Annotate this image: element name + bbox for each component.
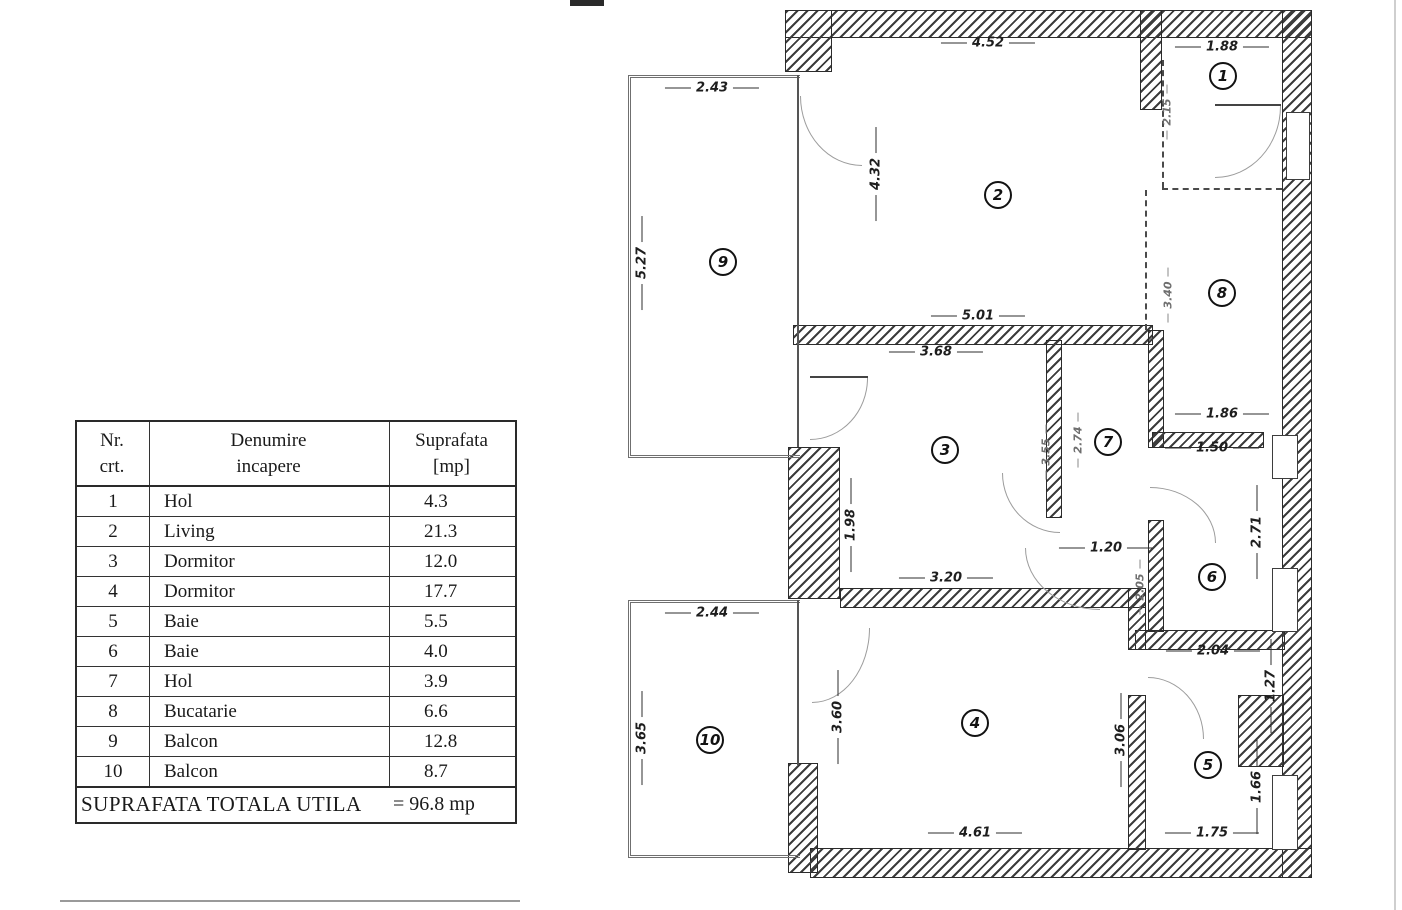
door-swing-arc [1150, 487, 1216, 543]
room-number-circle: 9 [709, 248, 737, 276]
wall [785, 10, 1312, 38]
dimension-label: 4.61 [928, 826, 1022, 841]
scanned-floor-plan-page: Nr. crt. Denumire incapere Suprafata [mp… [0, 0, 1402, 910]
dimension-label: 5.27 [635, 216, 650, 310]
room-number-circle: 7 [1094, 428, 1122, 456]
room-number-circle: 10 [696, 726, 724, 754]
wall [793, 325, 1153, 345]
dimension-label: 2.04 [1166, 644, 1260, 659]
dimension-label: 4.52 [941, 36, 1035, 51]
dimension-label: 3.40 [1162, 267, 1175, 322]
room-number-circle: 8 [1208, 279, 1236, 307]
dimension-label: 3.06 [1114, 693, 1129, 787]
wall [785, 10, 832, 72]
dimension-label: 1.88 [1175, 40, 1269, 55]
wall [1128, 695, 1146, 850]
room-number-circle: 2 [984, 181, 1012, 209]
dimension-label: 2.44 [665, 606, 759, 621]
wall [788, 447, 840, 599]
wall [840, 588, 1146, 608]
dimension-label: 3.20 [899, 571, 993, 586]
dimension-label: 1.20 [1059, 541, 1153, 556]
dimension-label: 1.27 [1264, 639, 1279, 733]
dimension-label: 3.55 [1040, 424, 1053, 479]
room-number-circle: 4 [961, 709, 989, 737]
room-number-circle: 3 [931, 436, 959, 464]
opening-dashed-line [1162, 188, 1282, 190]
door-swing-arc [1002, 473, 1060, 533]
wall [1140, 10, 1162, 110]
window [1272, 435, 1298, 479]
dimension-label: 4.32 [869, 127, 884, 221]
plan-line [1394, 0, 1396, 910]
room-number-circle: 5 [1194, 751, 1222, 779]
plan-line [570, 0, 604, 6]
plan-line [797, 75, 799, 447]
dimension-label: 1.50 [1165, 441, 1259, 456]
door-swing-arc [800, 96, 862, 166]
wall [810, 848, 1312, 878]
door-swing-arc [1148, 677, 1204, 739]
dimension-label: 1.66 [1250, 740, 1265, 834]
wall [1148, 330, 1164, 448]
dimension-label: 1.75 [1165, 826, 1259, 841]
window [1272, 568, 1298, 632]
plan-line [797, 600, 799, 765]
door-swing-arc [810, 378, 868, 440]
dimension-label: 2.43 [665, 81, 759, 96]
dimension-label: 3.68 [889, 345, 983, 360]
door-swing-arc [1215, 106, 1281, 178]
opening-dashed-line [1145, 190, 1147, 330]
dimension-label: 1.98 [844, 478, 859, 572]
window [1286, 112, 1310, 180]
dimension-label: 2.05 [1134, 559, 1147, 614]
window [1272, 775, 1298, 850]
dimension-label: 1.86 [1175, 407, 1269, 422]
dimension-label: 2.74 [1072, 412, 1085, 467]
floor-plan: 4.521.882.432.154.325.275.013.683.401.86… [0, 0, 1402, 910]
dimension-label: 3.60 [831, 670, 846, 764]
dimension-label: 5.01 [931, 309, 1025, 324]
plan-line [60, 900, 520, 902]
room-number-circle: 1 [1209, 62, 1237, 90]
dimension-label: 2.71 [1250, 485, 1265, 579]
dimension-label: 2.15 [1161, 84, 1174, 139]
room-number-circle: 6 [1198, 563, 1226, 591]
dimension-label: 3.65 [635, 691, 650, 785]
